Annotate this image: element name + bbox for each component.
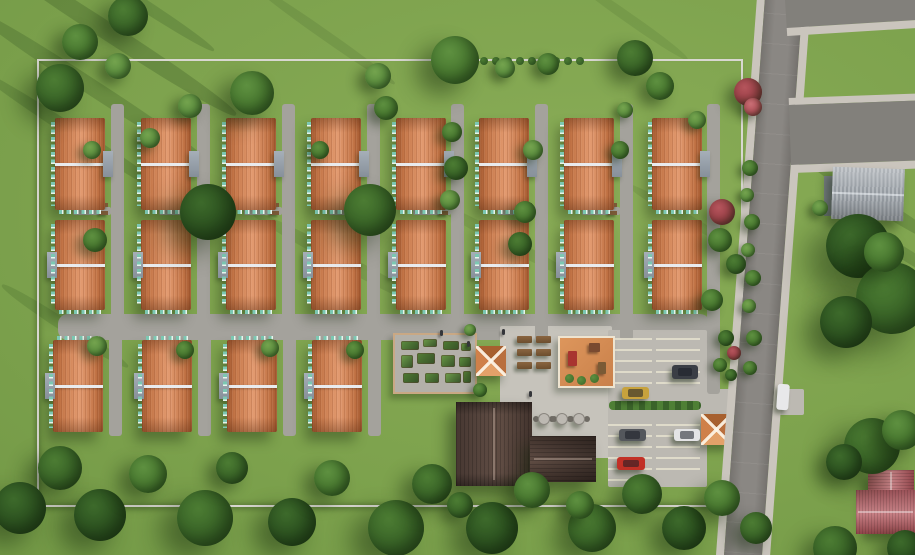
parking-stall-line — [656, 360, 700, 362]
parking-stall-line — [656, 457, 700, 459]
tree — [178, 94, 202, 118]
hedge-row — [315, 310, 357, 314]
hedge-row — [483, 310, 525, 314]
hedge-row — [230, 310, 272, 314]
walkway — [368, 336, 381, 436]
hedge-row — [59, 310, 101, 314]
parking-stall-line — [656, 338, 700, 340]
tree — [744, 98, 762, 116]
tree — [344, 184, 396, 236]
roof-ridge-band — [141, 264, 191, 267]
parking-stall-line — [656, 468, 700, 470]
hedge-row — [656, 210, 698, 214]
roof-ridge-line — [858, 511, 913, 513]
hedge-row — [400, 210, 442, 214]
house-roof — [396, 118, 446, 210]
roof-ridge-band — [564, 264, 614, 267]
barn-roof — [831, 167, 905, 221]
walkway — [109, 336, 122, 436]
parked-car — [622, 387, 649, 399]
wall-hedgerow-bush — [576, 57, 584, 65]
garden-bed — [401, 341, 419, 350]
tree — [709, 199, 735, 225]
house-roof — [141, 220, 191, 310]
wall-hedgerow-bush — [564, 57, 572, 65]
tree — [617, 102, 633, 118]
hedge-row — [475, 122, 479, 206]
hedge-row — [307, 122, 311, 206]
parking-stall-line — [608, 446, 652, 448]
house-roof — [311, 220, 361, 310]
house-extension — [189, 151, 199, 177]
public-road-mid — [789, 93, 915, 173]
roof-ridge-band — [141, 163, 191, 166]
garden-bed — [423, 339, 437, 347]
tree — [177, 490, 233, 546]
tree — [36, 64, 84, 112]
tree — [230, 71, 274, 115]
tree — [464, 324, 476, 336]
hedge-row — [49, 344, 53, 428]
parked-car — [672, 365, 698, 379]
house-roof — [652, 118, 702, 210]
walkway — [535, 104, 548, 340]
house-roof — [226, 118, 276, 210]
public-road-top — [785, 0, 915, 36]
roof-ridge-band — [311, 264, 361, 267]
person — [529, 391, 532, 397]
clubhouse-ridge — [534, 458, 592, 460]
hedge-row — [137, 224, 141, 306]
playground-bush — [577, 376, 586, 385]
hedge-row — [656, 310, 698, 314]
hedge-row — [560, 224, 564, 306]
hedge-row — [59, 210, 101, 214]
tree — [412, 464, 452, 504]
tree — [740, 512, 772, 544]
tree — [746, 330, 762, 346]
hedge-row — [138, 344, 142, 428]
house-roof — [652, 220, 702, 310]
outdoor-table — [573, 413, 585, 425]
neighbor-house-roof-wing — [856, 490, 915, 534]
garden-bed — [443, 341, 459, 350]
tree — [129, 455, 167, 493]
tree — [813, 526, 857, 555]
play-equipment — [589, 343, 600, 352]
tree — [882, 410, 915, 450]
hedge-row — [392, 122, 396, 206]
hedge-row — [568, 210, 610, 214]
tree — [523, 140, 543, 160]
clubhouse-ridge — [493, 408, 495, 480]
playground — [558, 336, 615, 388]
tree — [431, 36, 479, 84]
hedge-row — [560, 122, 564, 206]
parked-car — [674, 429, 700, 441]
tree — [176, 341, 194, 359]
tree — [812, 200, 828, 216]
person — [440, 330, 443, 336]
hedge-row — [308, 344, 312, 428]
hedge-row — [475, 224, 479, 306]
tree — [466, 502, 518, 554]
tree — [742, 299, 756, 313]
roof-ridge-band — [55, 163, 105, 166]
garden-bed — [459, 357, 471, 367]
house-roof — [55, 118, 105, 210]
house-extension — [274, 151, 284, 177]
roof-ridge-band — [53, 385, 103, 388]
parking-stall-line — [656, 382, 700, 384]
picnic-table — [517, 336, 532, 343]
walkway — [198, 336, 211, 436]
tree — [742, 160, 758, 176]
play-equipment — [568, 351, 577, 366]
car-windshield — [623, 460, 639, 468]
tree — [713, 358, 727, 372]
walkway — [282, 104, 295, 340]
house-extension — [359, 151, 369, 177]
tree — [473, 383, 487, 397]
parking-stall-line — [608, 424, 652, 426]
house-roof — [564, 220, 614, 310]
tree — [447, 492, 473, 518]
tree — [368, 500, 424, 555]
tree — [508, 232, 532, 256]
hedge-row — [222, 224, 226, 306]
roof-ridge-band — [479, 264, 529, 267]
roof-ridge-band — [396, 264, 446, 267]
parked-car — [617, 457, 645, 470]
tree — [726, 254, 746, 274]
picnic-table — [536, 336, 551, 343]
playground-bush — [565, 374, 574, 383]
house-roof — [226, 220, 276, 310]
roof-ridge-band — [652, 264, 702, 267]
parking-stall-line — [656, 446, 700, 448]
roof-ridge-band — [396, 163, 446, 166]
house-extension — [103, 151, 113, 177]
tree — [311, 141, 329, 159]
play-equipment — [598, 362, 606, 374]
roof-ridge-band — [652, 163, 702, 166]
tree — [826, 444, 862, 480]
tree — [611, 141, 629, 159]
tree — [38, 446, 82, 490]
tree — [261, 339, 279, 357]
roof-ridge-band — [564, 163, 614, 166]
tree — [444, 156, 468, 180]
barn-ridge — [832, 192, 904, 197]
car-windshield — [680, 431, 695, 438]
tree — [365, 63, 391, 89]
garden-bed — [441, 355, 455, 367]
tree — [718, 330, 734, 346]
car-windshield — [625, 431, 640, 438]
tree — [495, 58, 515, 78]
tree — [744, 214, 760, 230]
car-windshield — [678, 368, 693, 376]
tree — [74, 489, 126, 541]
tree — [83, 228, 107, 252]
roof-ridge-band — [479, 163, 529, 166]
hedge-row — [307, 224, 311, 306]
tree — [701, 289, 723, 311]
tree — [314, 460, 350, 496]
roof-ridge-band — [227, 385, 277, 388]
tree — [745, 270, 761, 286]
hedge-row — [145, 310, 187, 314]
tree — [62, 24, 98, 60]
hedge-row — [230, 210, 272, 214]
tree — [0, 482, 46, 534]
garden-bed — [401, 355, 413, 368]
car-windshield — [628, 389, 643, 396]
garden-bed — [425, 373, 439, 383]
tree — [216, 452, 248, 484]
aerial-site-render — [0, 0, 915, 555]
hedge-row — [392, 224, 396, 306]
house-roof — [396, 220, 446, 310]
wall-hedgerow-bush — [516, 57, 524, 65]
tree — [688, 111, 706, 129]
garden-bed — [417, 353, 435, 364]
roof-ridge-band — [226, 163, 276, 166]
picnic-table — [536, 349, 551, 356]
garden-bed — [463, 371, 471, 383]
outdoor-table — [556, 413, 568, 425]
tree — [727, 346, 741, 360]
person — [467, 341, 470, 347]
tree — [514, 201, 536, 223]
parking-stall-line — [656, 349, 700, 351]
tree — [346, 341, 364, 359]
hedge-row — [51, 122, 55, 206]
roof-ridge-band — [142, 385, 192, 388]
hedge-row — [223, 344, 227, 428]
tree — [537, 53, 559, 75]
picnic-table — [517, 349, 532, 356]
roof-ridge-band — [226, 264, 276, 267]
hedge-row — [316, 336, 358, 340]
house-roof — [479, 118, 529, 210]
roof-ridge-band — [312, 385, 362, 388]
wall-hedgerow-bush — [480, 57, 488, 65]
hedge-row — [568, 310, 610, 314]
tree — [662, 506, 706, 550]
tree — [105, 53, 131, 79]
person — [502, 329, 505, 335]
garden-bed — [445, 373, 461, 383]
community-garden — [393, 333, 477, 394]
tree — [87, 336, 107, 356]
hedge-row — [51, 224, 55, 306]
walkway — [620, 104, 633, 340]
tree — [180, 184, 236, 240]
tree — [622, 474, 662, 514]
house-extension — [700, 151, 710, 177]
tree — [708, 228, 732, 252]
walkway — [283, 336, 296, 436]
tree — [140, 128, 160, 148]
hedge-row — [400, 310, 442, 314]
playground-bush — [590, 374, 599, 383]
parked-car — [619, 429, 646, 441]
picnic-table — [517, 362, 532, 369]
house-roof — [564, 118, 614, 210]
tree — [864, 232, 904, 272]
tree — [820, 296, 872, 348]
outdoor-table — [538, 413, 550, 425]
tree — [374, 96, 398, 120]
road-asphalt — [789, 100, 915, 165]
tree — [268, 498, 316, 546]
clubhouse-roof — [456, 402, 532, 486]
wall-hedgerow-bush — [528, 57, 536, 65]
tree — [617, 40, 653, 76]
gazebo-roof — [476, 346, 506, 376]
tree — [740, 188, 754, 202]
road-vehicle — [776, 384, 790, 411]
tree — [743, 361, 757, 375]
tree — [108, 0, 148, 36]
picnic-table — [536, 362, 551, 369]
garden-bed — [403, 373, 419, 383]
parking-median-hedge — [609, 401, 701, 410]
hedge-row — [648, 224, 652, 306]
tree — [741, 243, 755, 257]
tree — [704, 480, 740, 516]
roof-ridge-band — [55, 264, 105, 267]
tree — [566, 491, 594, 519]
hedge-row — [146, 336, 188, 340]
hedge-row — [648, 122, 652, 206]
tree — [442, 122, 462, 142]
tree — [725, 369, 737, 381]
roof-ridge-band — [311, 163, 361, 166]
tree — [440, 190, 460, 210]
tree — [646, 72, 674, 100]
tree — [83, 141, 101, 159]
walkway — [111, 104, 124, 340]
parking-stall-line — [656, 424, 700, 426]
tree — [514, 472, 550, 508]
